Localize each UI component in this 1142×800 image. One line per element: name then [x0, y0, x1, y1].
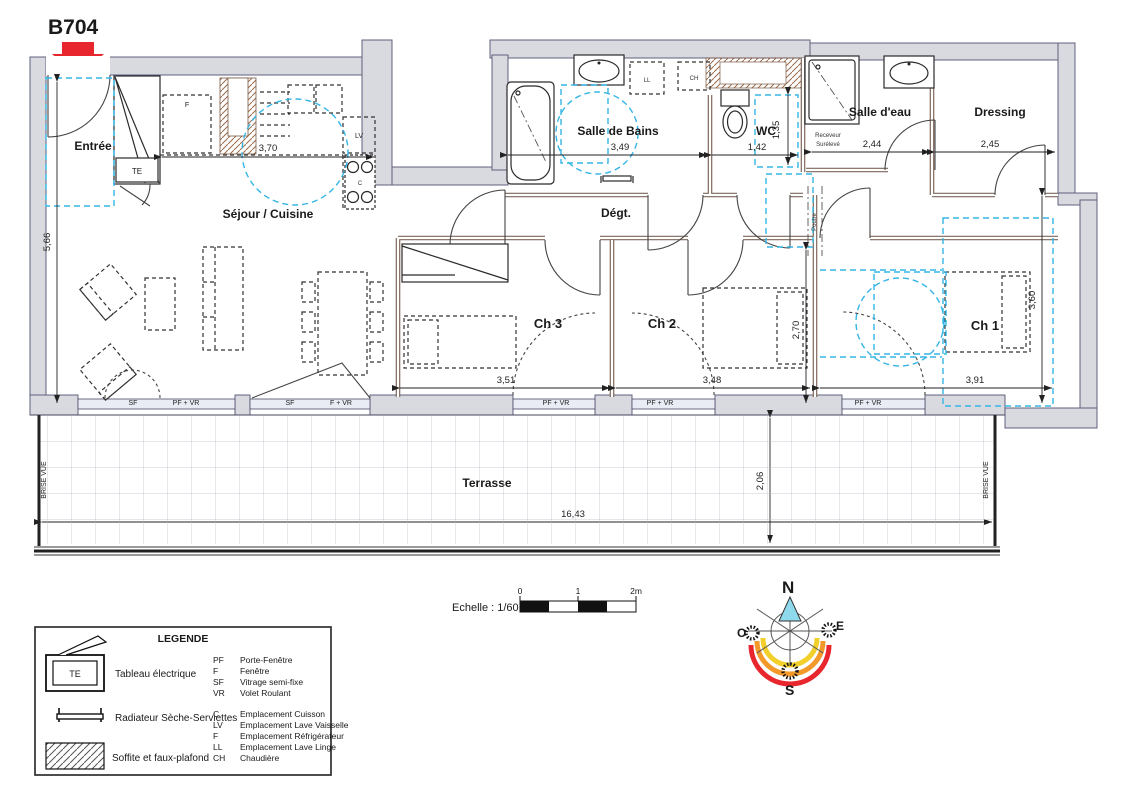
legend-te-text: TE: [69, 669, 81, 679]
beam-label: Poutre: [812, 213, 818, 231]
abbr-v-6: Emplacement Réfrigérateur: [240, 731, 344, 741]
sofa: [203, 247, 243, 350]
terrace-rail: [34, 547, 1000, 555]
window-opening-lines: [252, 363, 370, 398]
scale-tick-1: 1: [576, 586, 581, 596]
sink-right: [316, 85, 342, 113]
ch1-door: [820, 188, 870, 238]
floor-plan-page: B704: [0, 0, 1142, 800]
abbr-k-7: LL: [213, 742, 223, 752]
dim-wc-width: 1,42: [748, 142, 767, 153]
bed-ch3: [404, 316, 516, 368]
fridge-label: F: [185, 102, 189, 109]
room-label-sdb: Salle de Bains: [577, 124, 659, 138]
washbasin-shower-room: [884, 56, 934, 88]
compass-s-label: S: [785, 682, 794, 698]
window-label-sf-2: SF: [286, 400, 295, 407]
exterior-walls: [30, 40, 1097, 428]
abbr-v-8: Chaudière: [240, 753, 279, 763]
dim-ch2-height: 2,70: [791, 321, 802, 340]
abbr-k-2: SF: [213, 677, 224, 687]
legend-title: LEGENDE: [158, 633, 209, 645]
window-label-sf-1: SF: [129, 400, 138, 407]
dim-ch2-width: 3,48: [703, 375, 722, 386]
abbr-k-8: CH: [213, 753, 225, 763]
legend-item-2: Soffite et faux-plafond: [112, 753, 209, 764]
room-label-ch2: Ch 2: [648, 316, 676, 331]
cooking-label: C: [358, 181, 363, 187]
brise-vue-left-label: BRISE VUE: [41, 461, 48, 499]
room-label-dressing: Dressing: [974, 105, 1025, 119]
dressing-door: [995, 145, 1045, 195]
toilet: [721, 90, 749, 138]
abbr-v-2: Vitrage semi-fixe: [240, 677, 303, 687]
towel-radiator: [601, 176, 633, 183]
te-label: TE: [132, 167, 142, 176]
room-label-sejour: Séjour / Cuisine: [223, 207, 314, 221]
coffee-table: [145, 278, 175, 330]
dining-table: [302, 272, 383, 375]
brise-vue-right-label: BRISE VUE: [983, 461, 990, 499]
legend-item-0: Tableau électrique: [115, 669, 197, 680]
compass-o-label: O: [737, 626, 746, 640]
floor-plan-svg: B704: [0, 0, 1142, 800]
ch3-closet: [402, 244, 508, 282]
dim-sejour-width: 3,70: [259, 143, 278, 154]
abbr-k-1: F: [213, 666, 218, 676]
living-room-furniture: [80, 247, 383, 400]
dim-salle-eau-width: 2,44: [863, 139, 882, 150]
scale-tick-2: 2m: [630, 586, 642, 596]
dim-ch3-width: 3,51: [497, 375, 516, 386]
room-label-salle-eau: Salle d'eau: [849, 105, 911, 119]
bathroom-door: [648, 195, 703, 250]
legend-symbol-soffit: [46, 743, 104, 769]
window-label-fvr: F + VR: [330, 400, 352, 407]
abbr-v-4: Emplacement Cuisson: [240, 709, 325, 719]
compass-e-label: E: [836, 619, 844, 633]
bathtub: [507, 82, 554, 184]
abbr-v-7: Emplacement Lave Linge: [240, 742, 336, 752]
compass-n-label: N: [782, 578, 794, 597]
dim-ch1-height: 3,60: [1027, 291, 1038, 310]
shower-tray-label-1: Receveur: [815, 133, 841, 139]
ch2-door: [688, 240, 743, 295]
window-label-pfvr-1: PF + VR: [173, 400, 200, 407]
dim-ch1-width: 3,91: [966, 375, 985, 386]
room-label-degt: Dégt.: [601, 206, 631, 220]
window-label-ch1: PF + VR: [855, 400, 882, 407]
abbr-k-3: VR: [213, 688, 225, 698]
dim-sejour-height: 5,66: [42, 233, 53, 252]
entry-closet: [114, 76, 160, 206]
abbr-k-4: C: [213, 709, 219, 719]
shower-room-door: [885, 120, 935, 170]
room-label-ch3: Ch 3: [534, 316, 562, 331]
ch3-door: [545, 240, 600, 295]
abbr-k-0: PF: [213, 655, 224, 665]
bedroom-furniture: [402, 244, 1030, 368]
abbr-k-6: F: [213, 731, 218, 741]
dim-wc-height: 1,35: [771, 121, 782, 140]
dim-dressing-width: 2,45: [981, 139, 1000, 150]
compass-north-needle: [779, 597, 801, 621]
window-label-ch2: PF + VR: [647, 400, 674, 407]
dim-sdb-width: 3,49: [611, 142, 630, 153]
abbr-k-5: LV: [213, 720, 223, 730]
dishwasher-label: LV: [355, 133, 363, 140]
ch1-window-swing: [842, 312, 925, 395]
drainboard: [260, 92, 290, 136]
boiler-label: CH: [690, 76, 699, 82]
shower-tray-label-2: Surélevé: [816, 142, 840, 148]
washer-label: LL: [644, 78, 651, 84]
abbr-v-5: Emplacement Lave Vaisselle: [240, 720, 349, 730]
terrace: [30, 415, 1005, 555]
scale-tick-0: 0: [518, 586, 523, 596]
compass-rose: [746, 597, 835, 684]
washbasin-bathroom: [574, 55, 624, 85]
scale-bar: [520, 596, 636, 612]
abbr-v-3: Volet Roulant: [240, 688, 291, 698]
unit-title: B704: [48, 16, 99, 39]
bed-ch1: [945, 272, 1030, 352]
room-label-entree: Entrée: [74, 139, 112, 153]
window-label-ch3: PF + VR: [543, 400, 570, 407]
room-label-ch1: Ch 1: [971, 318, 999, 333]
abbr-v-1: Fenêtre: [240, 666, 270, 676]
ch1-access-zones: [820, 218, 1053, 406]
scale-label: Echelle : 1/60: [452, 602, 519, 614]
abbr-v-0: Porte-Fenêtre: [240, 655, 293, 665]
